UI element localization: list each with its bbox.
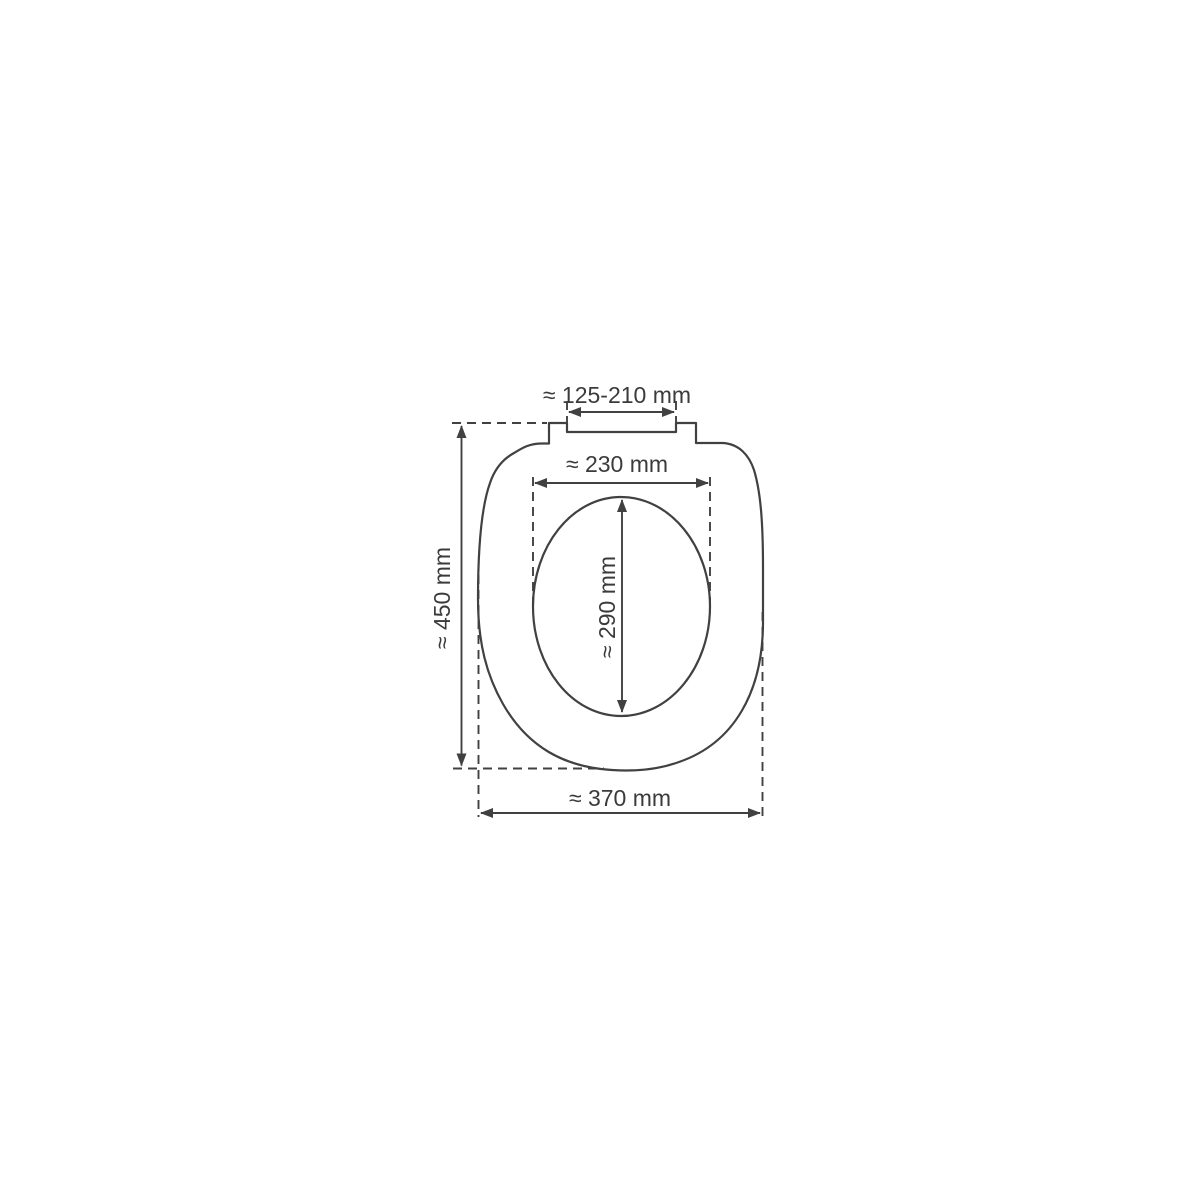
- toilet-seat-dimension-diagram: ≈ 125-210 mm ≈ 230 mm ≈ 290 mm ≈ 450 mm …: [0, 0, 1200, 1200]
- dimension-diagram-page: ≈ 125-210 mm ≈ 230 mm ≈ 290 mm ≈ 450 mm …: [0, 0, 1200, 1200]
- inner-width-label: ≈ 230 mm: [566, 451, 668, 477]
- total-width-dimension: ≈ 370 mm: [479, 575, 763, 817]
- inner-length-label: ≈ 290 mm: [594, 556, 620, 658]
- inner-length-dimension: ≈ 290 mm: [594, 500, 622, 712]
- total-length-label: ≈ 450 mm: [429, 547, 455, 649]
- total-width-label: ≈ 370 mm: [569, 785, 671, 811]
- hinge-width-label: ≈ 125-210 mm: [543, 382, 691, 408]
